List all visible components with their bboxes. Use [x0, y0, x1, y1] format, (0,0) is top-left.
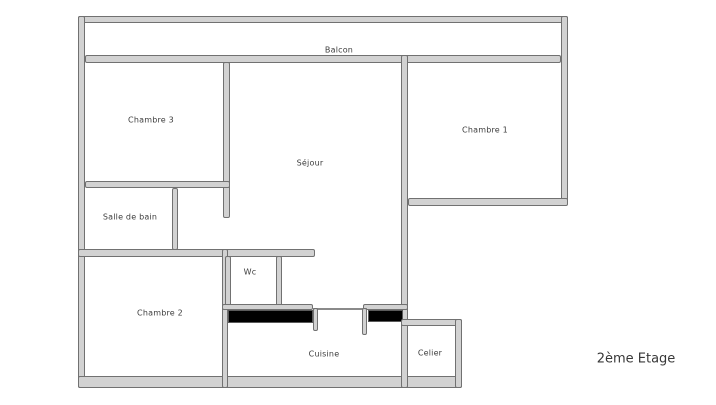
room-label-salle-de-bain: Salle de bain	[103, 213, 157, 222]
filled-wall-segment-1	[228, 310, 313, 323]
room-label-cuisine: Cuisine	[309, 350, 340, 359]
wall-sdb-right	[172, 188, 178, 250]
floorplan-canvas: Balcon Chambre 3 Séjour Chambre 1 Salle …	[0, 0, 716, 405]
wall-exterior-right-upper	[561, 16, 568, 205]
door-lintel	[313, 308, 367, 310]
wall-wc-left	[225, 256, 231, 310]
room-label-celier: Celier	[418, 349, 442, 358]
door-jamb-left	[313, 308, 318, 331]
filled-wall-segment-2	[368, 310, 403, 322]
door-jamb-right	[362, 308, 367, 335]
wall-wc-right	[276, 256, 282, 310]
room-label-wc: Wc	[244, 268, 257, 277]
wall-exterior-left	[78, 16, 85, 388]
wall-sejour-chambre1	[401, 55, 408, 388]
wall-balcony-bottom	[85, 55, 561, 63]
wall-chambre1-bottom	[408, 198, 568, 206]
room-label-chambre2: Chambre 2	[137, 309, 183, 318]
floor-title: 2ème Etage	[597, 352, 676, 367]
room-label-chambre3: Chambre 3	[128, 116, 174, 125]
room-label-balcon: Balcon	[325, 46, 353, 55]
room-label-sejour: Séjour	[297, 159, 324, 168]
wall-exterior-top	[78, 16, 568, 23]
wall-celier-top	[401, 319, 462, 326]
wall-chambre3-sdb	[85, 181, 230, 188]
wall-chambre3-sejour	[223, 62, 230, 218]
wall-celier-right	[455, 319, 462, 388]
room-label-chambre1: Chambre 1	[462, 126, 508, 135]
